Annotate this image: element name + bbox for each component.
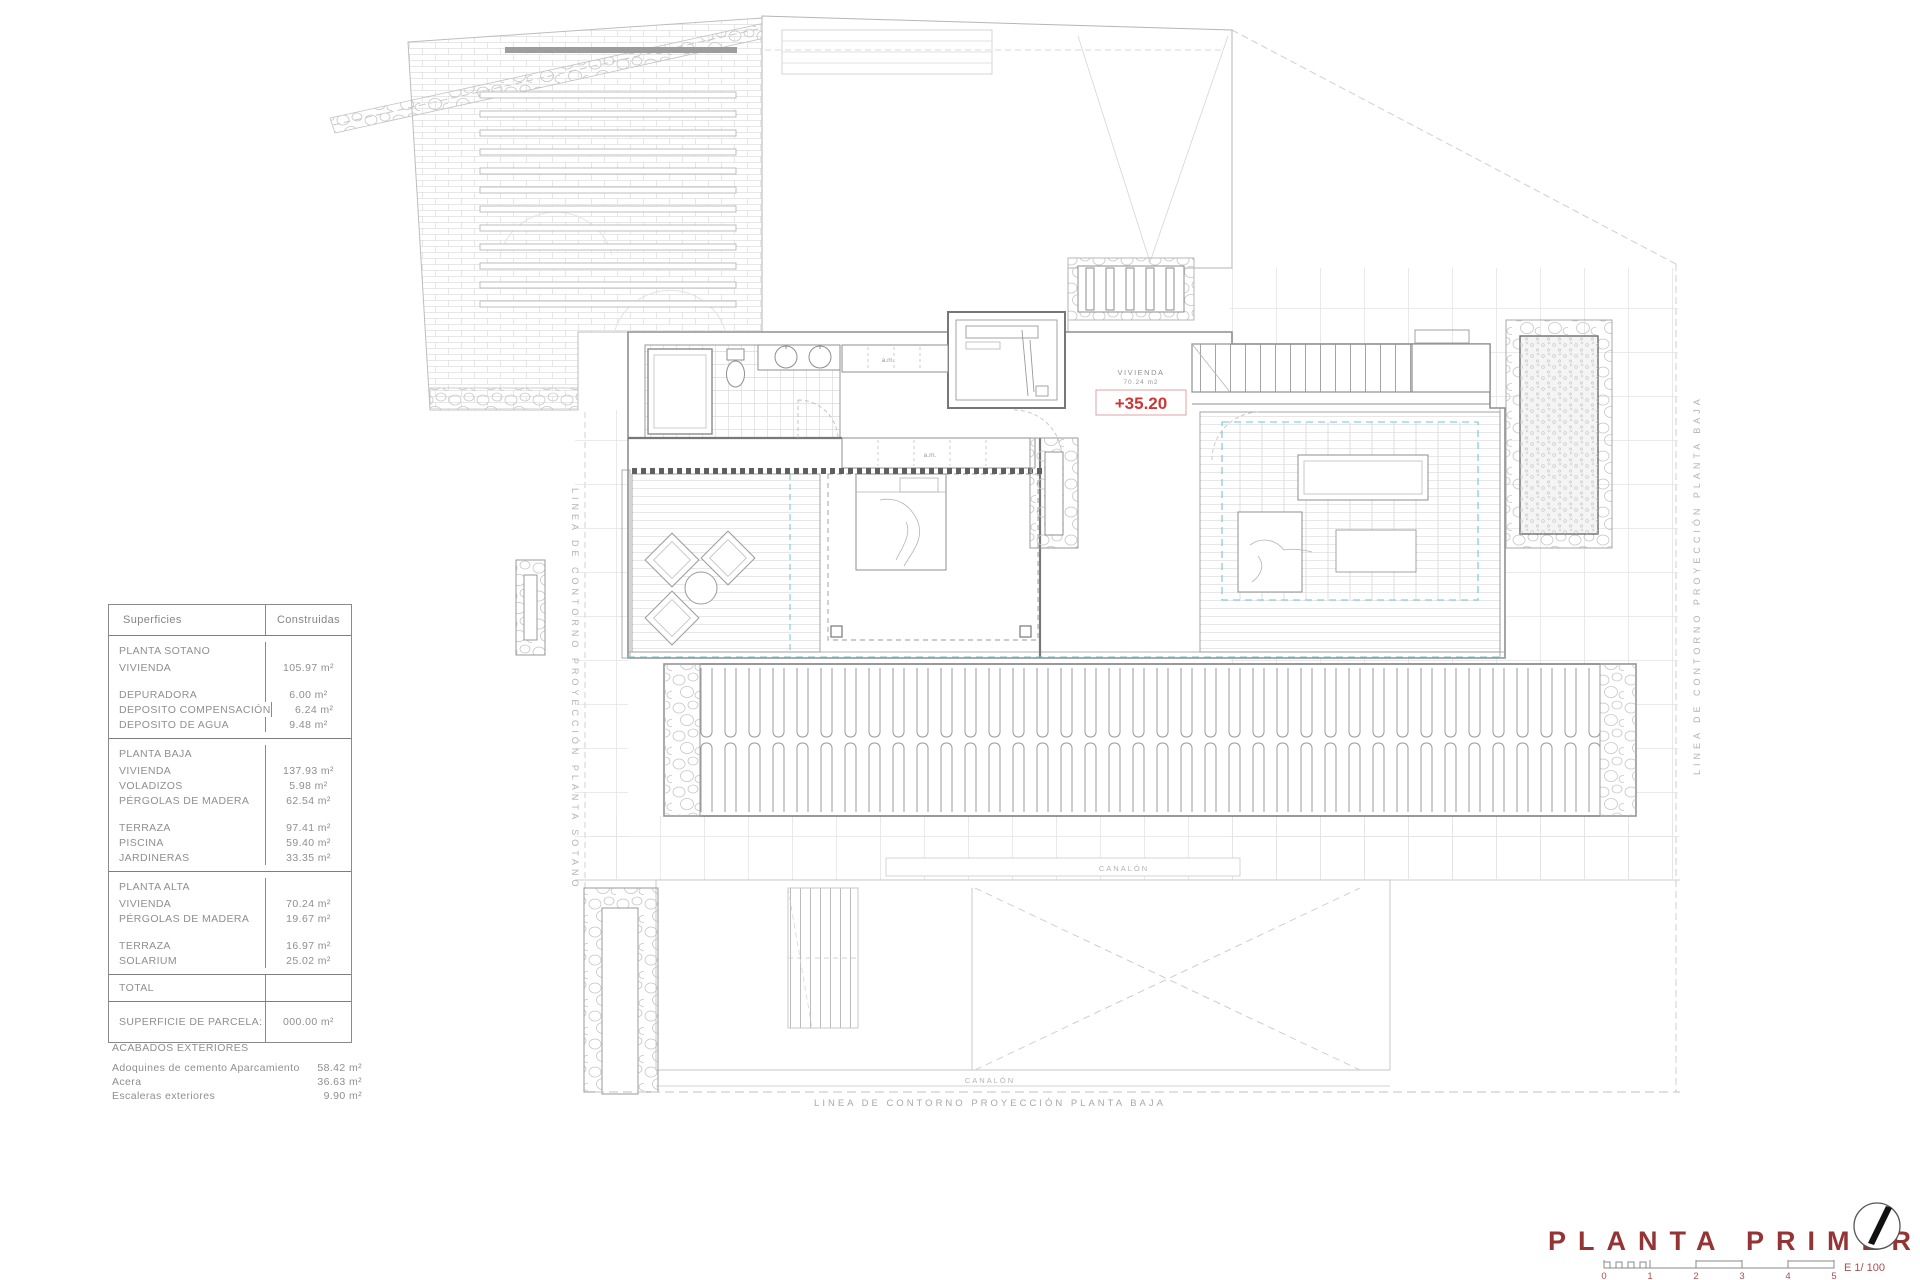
contour-baja-bottom-label: LINEA DE CONTORNO PROYECCIÓN PLANTA BAJA — [814, 1098, 1166, 1109]
table-row: PISCINA 59.40 m² — [109, 835, 351, 850]
elevation-value: +35.20 — [1115, 394, 1167, 413]
row-value: 59.40 m² — [265, 835, 351, 850]
wood-pergola — [664, 664, 1636, 816]
ext-label: Acera — [112, 1075, 141, 1089]
row-label: VIVIENDA — [109, 765, 265, 777]
round-table — [685, 572, 717, 604]
contour-sotano-label: LINEA DE CONTORNO PROYECCIÓN PLANTA SOTA… — [570, 488, 580, 891]
table-row: PLANTA SOTANO — [109, 635, 351, 660]
ext-row: Acera 36.63 m² — [112, 1075, 362, 1089]
table-row: DEPURADORA 6.00 m² — [109, 687, 351, 702]
table-row: DEPOSITO DE AGUA 9.48 m² — [109, 717, 351, 738]
table-row: VIVIENDA 105.97 m² — [109, 660, 351, 675]
scale-tick: 1 — [1647, 1271, 1652, 1280]
row-value: 137.93 m² — [265, 763, 351, 778]
row-value: 6.00 m² — [265, 687, 351, 702]
row-label: PISCINA — [109, 837, 265, 849]
entry-grille — [1068, 258, 1194, 320]
table — [1298, 455, 1428, 500]
table-row: PÉRGOLAS DE MADERA 62.54 m² — [109, 793, 351, 808]
table-row: PÉRGOLAS DE MADERA 19.67 m² — [109, 911, 351, 926]
header-label: Superficies — [109, 614, 265, 626]
stone-chimney — [1030, 438, 1078, 548]
scale-tick: 5 — [1831, 1271, 1836, 1280]
ext-row: Adoquines de cemento Aparcamiento 58.42 … — [112, 1061, 362, 1075]
scale-ratio: E 1/ 100 — [1844, 1262, 1885, 1274]
toilet — [727, 361, 745, 387]
ext-label: Adoquines de cemento Aparcamiento — [112, 1061, 300, 1075]
row-value: 6.24 m² — [271, 702, 357, 717]
row-label: TERRAZA — [109, 822, 265, 834]
row-value: 25.02 m² — [265, 953, 351, 968]
row-label: PLANTA BAJA — [109, 748, 265, 760]
canalon-label: CANALÓN — [965, 1076, 1015, 1085]
table-row: VIVIENDA 70.24 m² — [109, 896, 351, 911]
ext-value: 9.90 m² — [324, 1089, 362, 1103]
stone-pillar — [516, 560, 545, 655]
row-label: SOLARIUM — [109, 955, 265, 967]
ext-row: Escaleras exteriores 9.90 m² — [112, 1089, 362, 1103]
bathroom — [628, 345, 842, 438]
closet-label: a.m. — [924, 452, 937, 459]
row-label: DEPOSITO COMPENSACIÓN — [109, 704, 271, 716]
row-label: VIVIENDA — [109, 662, 265, 674]
low-table — [1336, 530, 1416, 572]
row-label: PÉRGOLAS DE MADERA — [109, 913, 265, 925]
table-row: PLANTA BAJA — [109, 738, 351, 763]
room-label: VIVIENDA — [1117, 368, 1164, 377]
gravel-patio — [1506, 320, 1612, 548]
header-value: Construidas — [265, 605, 351, 635]
sink — [809, 346, 831, 368]
row-value: 000.00 m² — [265, 1002, 351, 1042]
title-block: PLANTA PRIMERA 0 1 2 3 4 5 E 1/ 100 — [1548, 1203, 1920, 1280]
canalon-label: CANALÓN — [1099, 864, 1149, 873]
row-value: 105.97 m² — [265, 660, 351, 675]
table-row: VIVIENDA 137.93 m² — [109, 763, 351, 778]
chaise — [1238, 512, 1302, 592]
shower — [648, 349, 712, 434]
gutter-band: CANALÓN — [886, 858, 1240, 876]
table-row: TOTAL — [109, 974, 351, 1001]
table-row: SOLARIUM 25.02 m² — [109, 953, 351, 974]
row-value: 33.35 m² — [265, 850, 351, 865]
row-label: VOLADIZOS — [109, 780, 265, 792]
surfaces-table: Superficies Construidas PLANTA SOTANO VI… — [108, 604, 352, 1043]
table-row: JARDINERAS 33.35 m² — [109, 850, 351, 871]
table-row: DEPOSITO COMPENSACIÓN 6.24 m² — [109, 702, 351, 717]
scale-tick: 3 — [1739, 1271, 1744, 1280]
table-row: TERRAZA 97.41 m² — [109, 820, 351, 835]
exterior-finishes-title: ACABADOS EXTERIORES — [112, 1042, 362, 1054]
row-value: 16.97 m² — [265, 938, 351, 953]
row-value: 5.98 m² — [265, 778, 351, 793]
graphic-scale: 0 1 2 3 4 5 E 1/ 100 — [1601, 1260, 1885, 1280]
drawing-sheet: a.m. a.m. — [0, 0, 1920, 1280]
table-header: Superficies Construidas — [109, 605, 351, 635]
table-row: PLANTA ALTA — [109, 871, 351, 896]
closet-label: a.m. — [882, 357, 895, 364]
ext-value: 36.63 m² — [317, 1075, 362, 1089]
table-row: TERRAZA 16.97 m² — [109, 938, 351, 953]
row-label: PLANTA SOTANO — [109, 645, 265, 657]
table-row: SUPERFICIE DE PARCELA: 000.00 m² — [109, 1001, 351, 1042]
scale-tick: 2 — [1693, 1271, 1698, 1280]
toilet-tank — [727, 349, 744, 360]
sink — [775, 346, 797, 368]
row-value: 19.67 m² — [265, 911, 351, 926]
table-row: VOLADIZOS 5.98 m² — [109, 778, 351, 793]
scale-tick: 0 — [1601, 1271, 1606, 1280]
row-label: DEPURADORA — [109, 689, 265, 701]
exterior-finishes: ACABADOS EXTERIORES Adoquines de cemento… — [112, 1042, 362, 1103]
row-value: 70.24 m² — [265, 896, 351, 911]
row-label: SUPERFICIE DE PARCELA: — [109, 1016, 265, 1028]
scale-tick: 4 — [1785, 1271, 1790, 1280]
row-label: TERRAZA — [109, 940, 265, 952]
row-value: 97.41 m² — [265, 820, 351, 835]
ext-label: Escaleras exteriores — [112, 1089, 215, 1103]
bed — [856, 474, 946, 570]
row-label: VIVIENDA — [109, 898, 265, 910]
row-label: DEPOSITO DE AGUA — [109, 719, 265, 731]
row-value: 9.48 m² — [265, 717, 351, 732]
row-value: 62.54 m² — [265, 793, 351, 808]
north-arrow-icon — [1854, 1203, 1900, 1249]
ext-value: 58.42 m² — [317, 1061, 362, 1075]
room-area-label: 70.24 m2 — [1123, 379, 1158, 386]
lower-projection — [584, 880, 1680, 1094]
row-label: PLANTA ALTA — [109, 881, 265, 893]
contour-baja-right-label: LINEA DE CONTORNO PROYECCIÓN PLANTA BAJA — [1692, 395, 1702, 775]
row-label: JARDINERAS — [109, 852, 265, 864]
row-label: TOTAL — [109, 982, 265, 994]
row-label: PÉRGOLAS DE MADERA — [109, 795, 265, 807]
